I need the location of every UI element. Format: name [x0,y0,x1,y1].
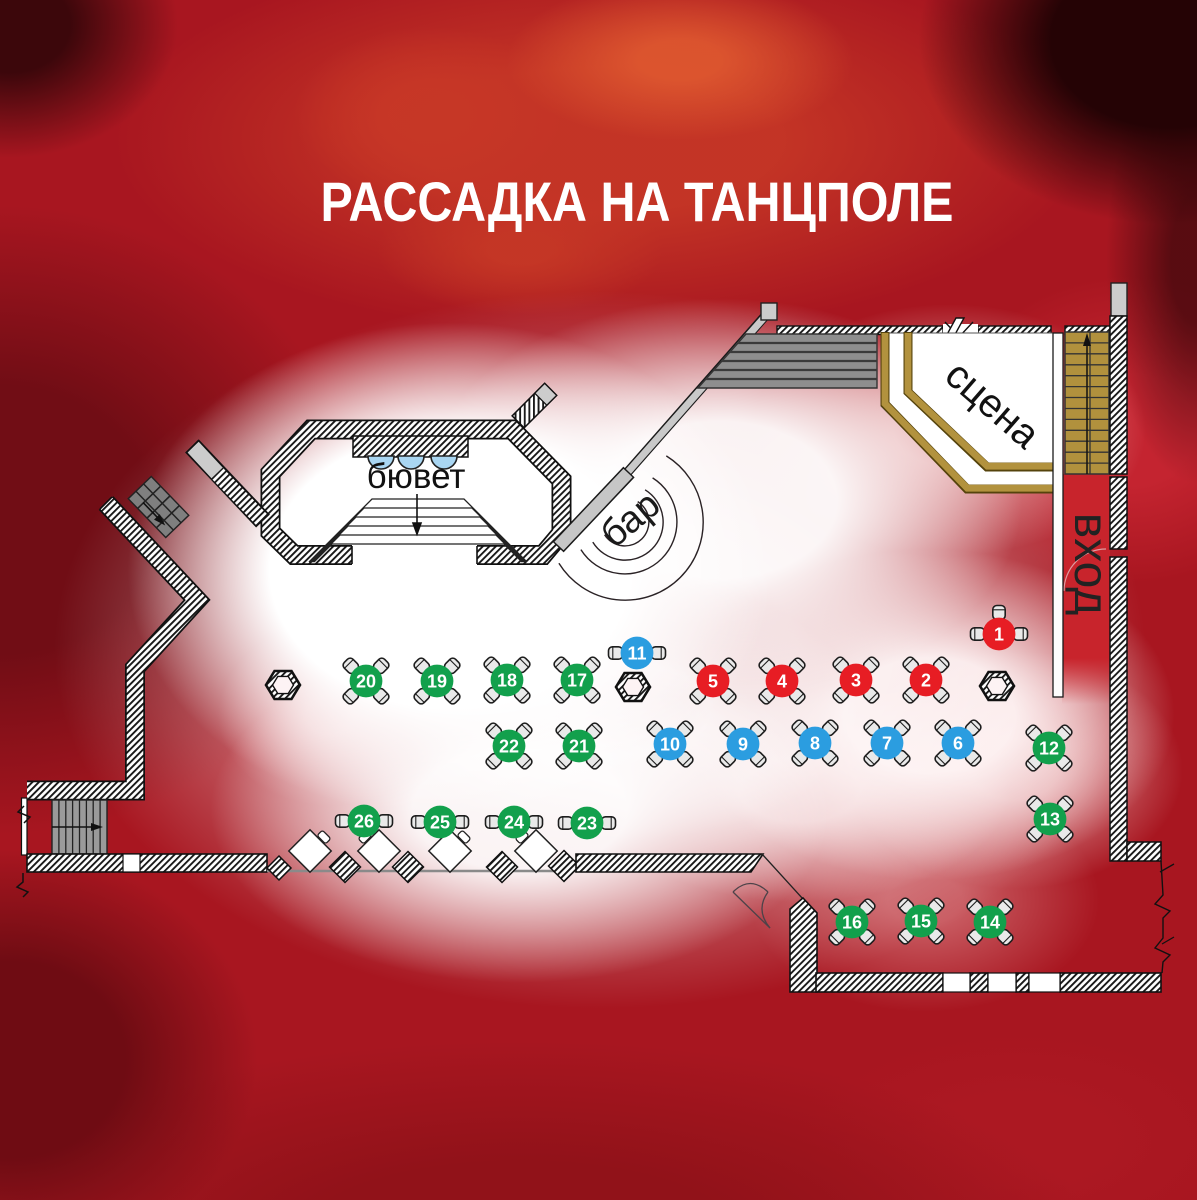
svg-text:10: 10 [660,734,680,754]
svg-text:3: 3 [851,670,861,690]
svg-text:1: 1 [994,624,1004,644]
svg-text:4: 4 [777,671,787,691]
svg-text:19: 19 [427,671,447,691]
svg-text:РАССАДКА НА ТАНЦПОЛЕ: РАССАДКА НА ТАНЦПОЛЕ [321,170,954,233]
svg-text:9: 9 [738,734,748,754]
svg-text:15: 15 [911,911,931,931]
svg-text:11: 11 [627,643,646,663]
svg-text:24: 24 [504,812,524,832]
svg-text:бювет: бювет [367,457,466,496]
svg-text:12: 12 [1039,738,1059,758]
svg-text:14: 14 [980,912,1000,932]
svg-text:16: 16 [842,912,862,932]
svg-text:23: 23 [577,813,597,833]
svg-text:вход: вход [1064,513,1117,616]
svg-text:8: 8 [810,733,820,753]
svg-text:25: 25 [430,812,450,832]
svg-text:18: 18 [497,670,517,690]
svg-text:6: 6 [953,733,963,753]
svg-text:22: 22 [499,736,519,756]
svg-text:13: 13 [1040,809,1060,829]
svg-text:21: 21 [569,736,589,756]
svg-text:20: 20 [356,671,376,691]
svg-text:26: 26 [354,811,374,831]
svg-text:7: 7 [882,733,892,753]
svg-text:17: 17 [567,670,587,690]
svg-text:2: 2 [921,670,931,690]
svg-text:5: 5 [708,671,718,691]
